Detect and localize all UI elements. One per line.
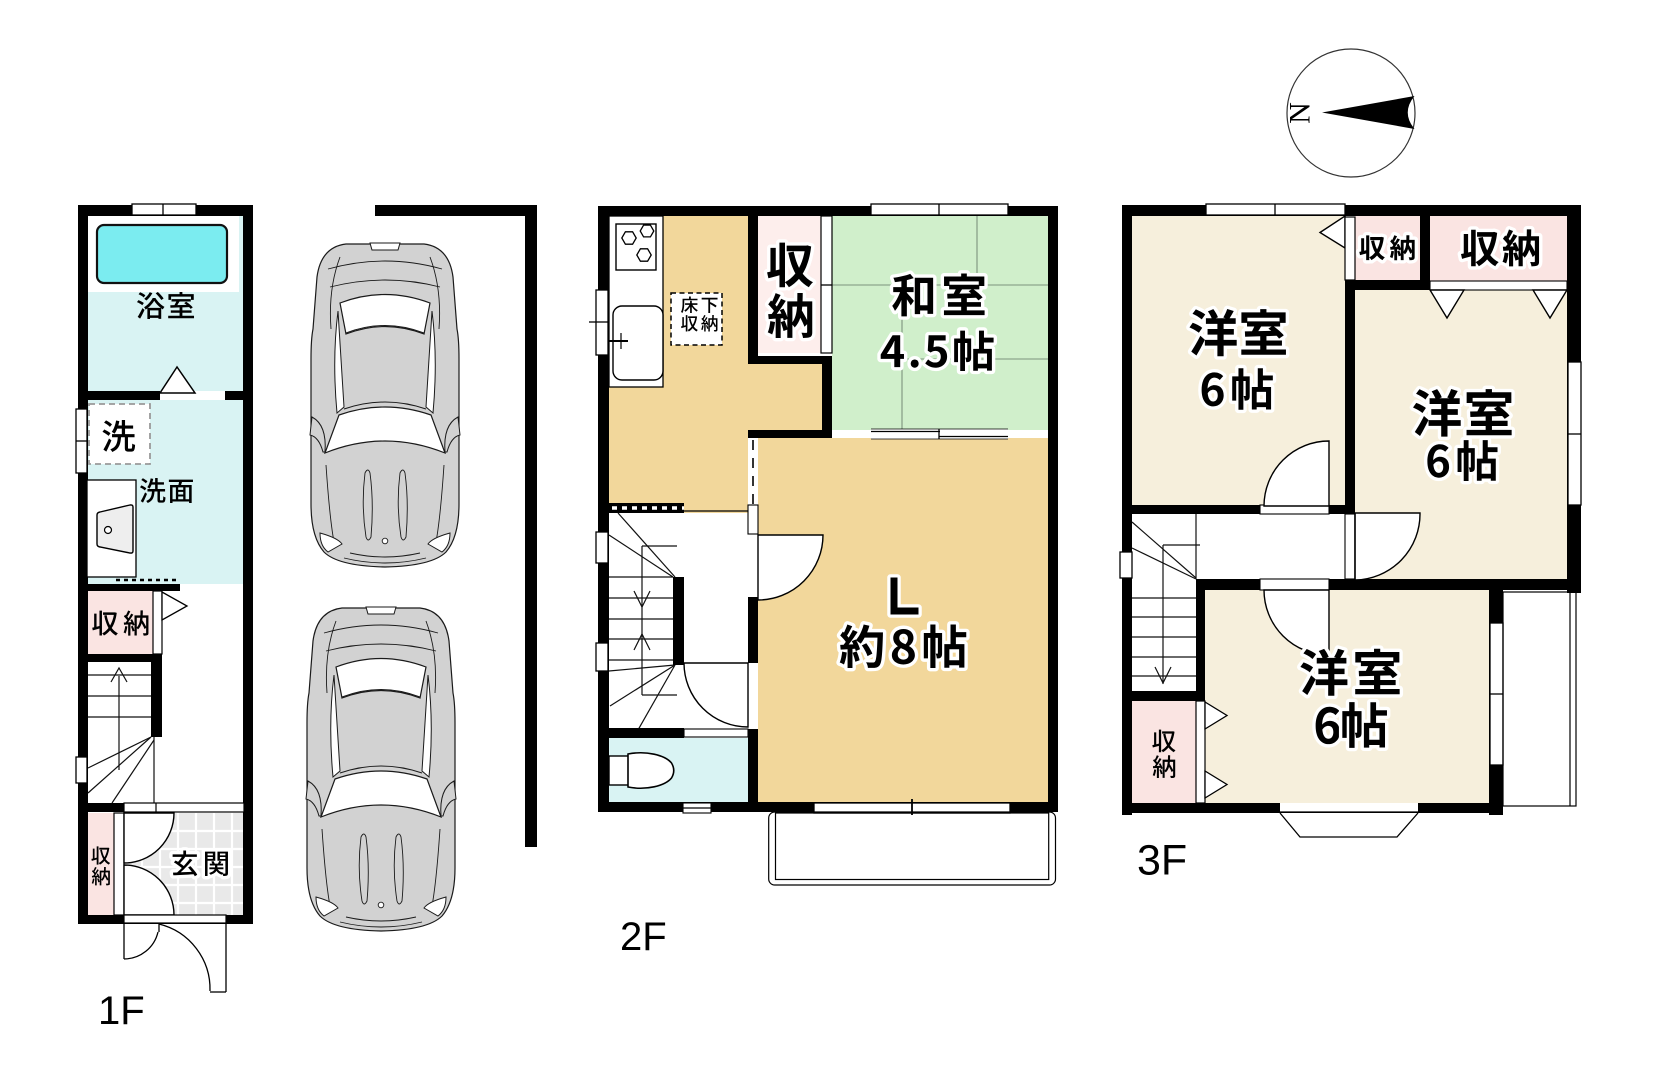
svg-text:N: N [1284,102,1317,124]
svg-text:2F: 2F [620,915,667,959]
svg-text:3F: 3F [1137,837,1187,885]
svg-text:1F: 1F [98,989,145,1033]
